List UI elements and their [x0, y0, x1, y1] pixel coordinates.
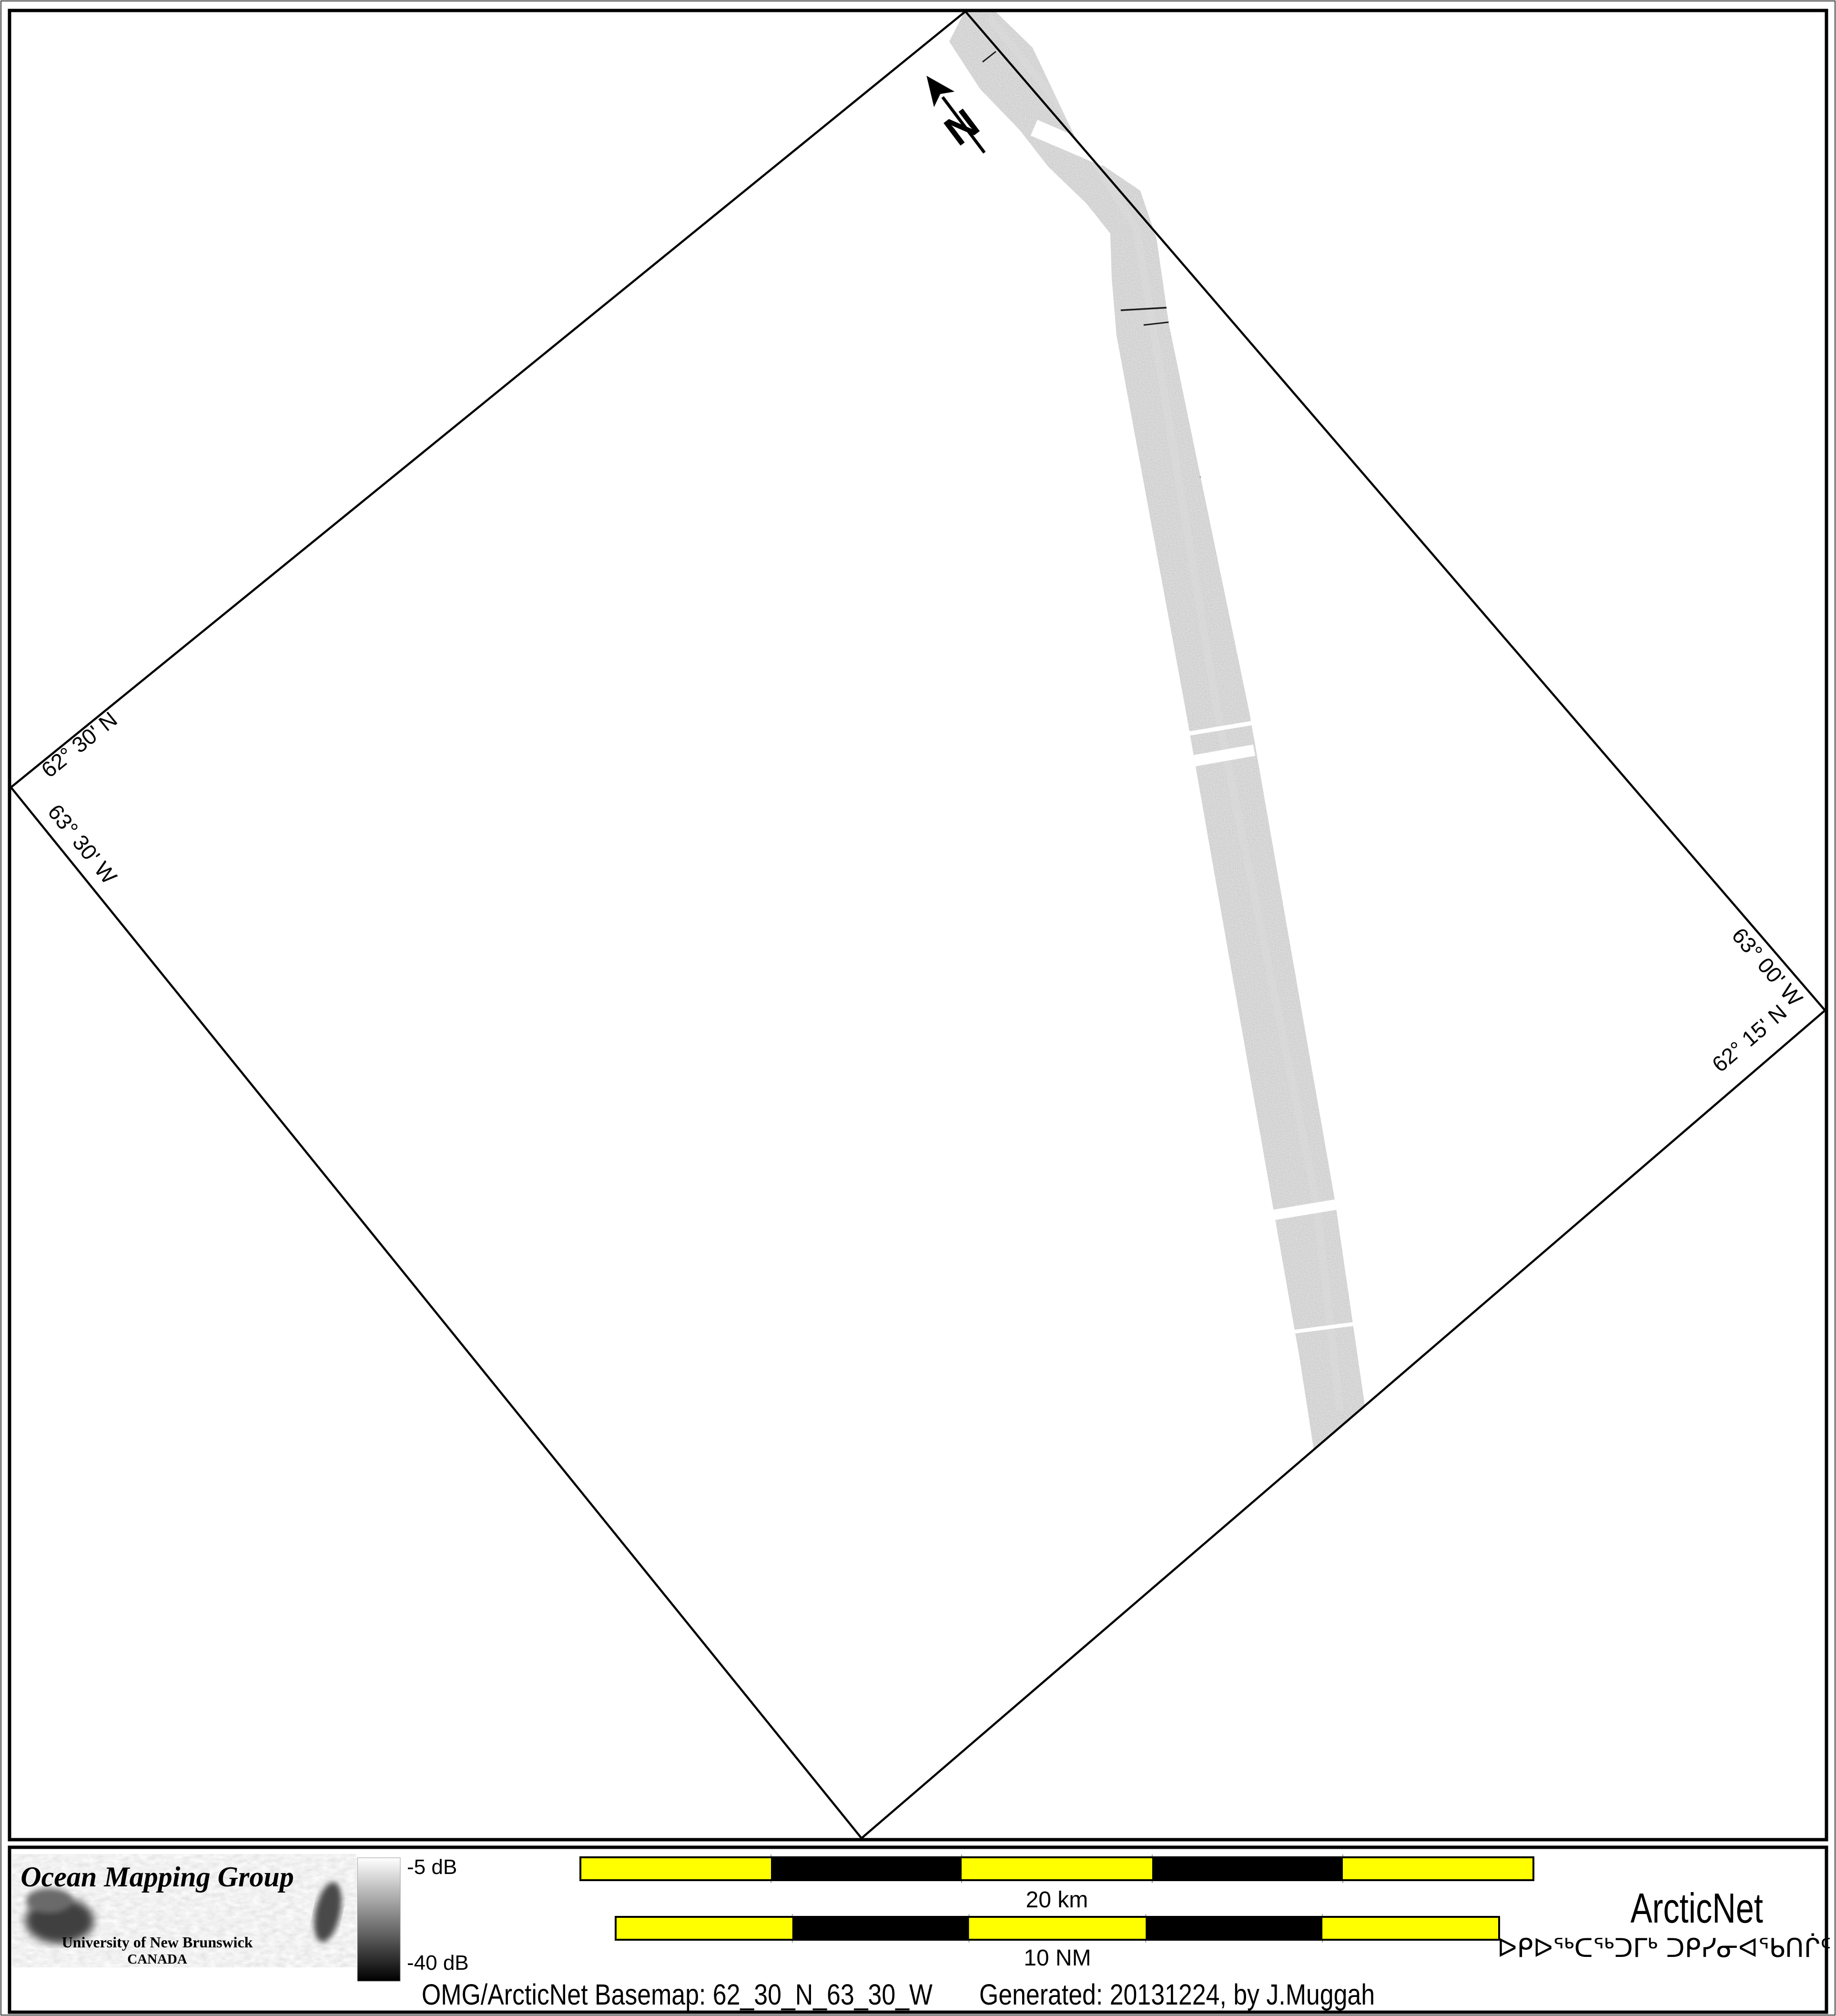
- scalebar-km-segment: [962, 1857, 1152, 1880]
- scalebar-km-segment: [771, 1857, 962, 1880]
- omg-logo-country: CANADA: [127, 1952, 187, 1967]
- scalebar-nm-segment: [792, 1917, 969, 1940]
- scalebar-km-segment: [1343, 1857, 1533, 1880]
- arcticnet-logo-inuktitut: ᐅᑭᐅᖅᑕᖅᑐᒥᒃ ᑐᑭᓯᓂᐊᖃᑎᒌᑦ: [1497, 1933, 1831, 1963]
- caption-basemap-text: OMG/ArcticNet Basemap: 62_30_N_63_30_W: [422, 1978, 933, 2011]
- arcticnet-logo-name: ArcticNet: [1631, 1885, 1763, 1932]
- scalebar-nm-segment: [1146, 1917, 1322, 1940]
- page-background: [0, 0, 1836, 2016]
- basemap-image: 62° 30' N 63° 30' W 63° 00' W 62° 15' N …: [0, 0, 1836, 2016]
- colorbar-top-label: -5 dB: [407, 1855, 457, 1879]
- omg-logo: Ocean Mapping Group University of New Br…: [12, 1854, 356, 1967]
- basemap-page: 62° 30' N 63° 30' W 63° 00' W 62° 15' N …: [0, 0, 1836, 2016]
- caption-generated-text: Generated: 20131224, by J.Muggah: [979, 1978, 1375, 2011]
- caption: OMG/ArcticNet Basemap: 62_30_N_63_30_W G…: [422, 1978, 1375, 2011]
- scalebar-nm-segment: [969, 1917, 1146, 1940]
- scalebar-nm-segment: [1322, 1917, 1499, 1940]
- scalebar-km-segment: [1152, 1857, 1343, 1880]
- omg-logo-title: Ocean Mapping Group: [20, 1861, 294, 1893]
- omg-logo-subtitle: University of New Brunswick: [62, 1934, 253, 1951]
- colorbar-bottom-label: -40 dB: [407, 1951, 469, 1975]
- scalebar-km-label: 20 km: [1026, 1887, 1088, 1913]
- legend-panel: Ocean Mapping Group University of New Br…: [10, 1847, 1831, 2012]
- scalebar-nm-segment: [616, 1917, 792, 1940]
- scalebar-nm-label: 10 NM: [1024, 1945, 1091, 1971]
- scalebar-km-segment: [580, 1857, 771, 1880]
- colorbar-gradient: [357, 1858, 400, 1981]
